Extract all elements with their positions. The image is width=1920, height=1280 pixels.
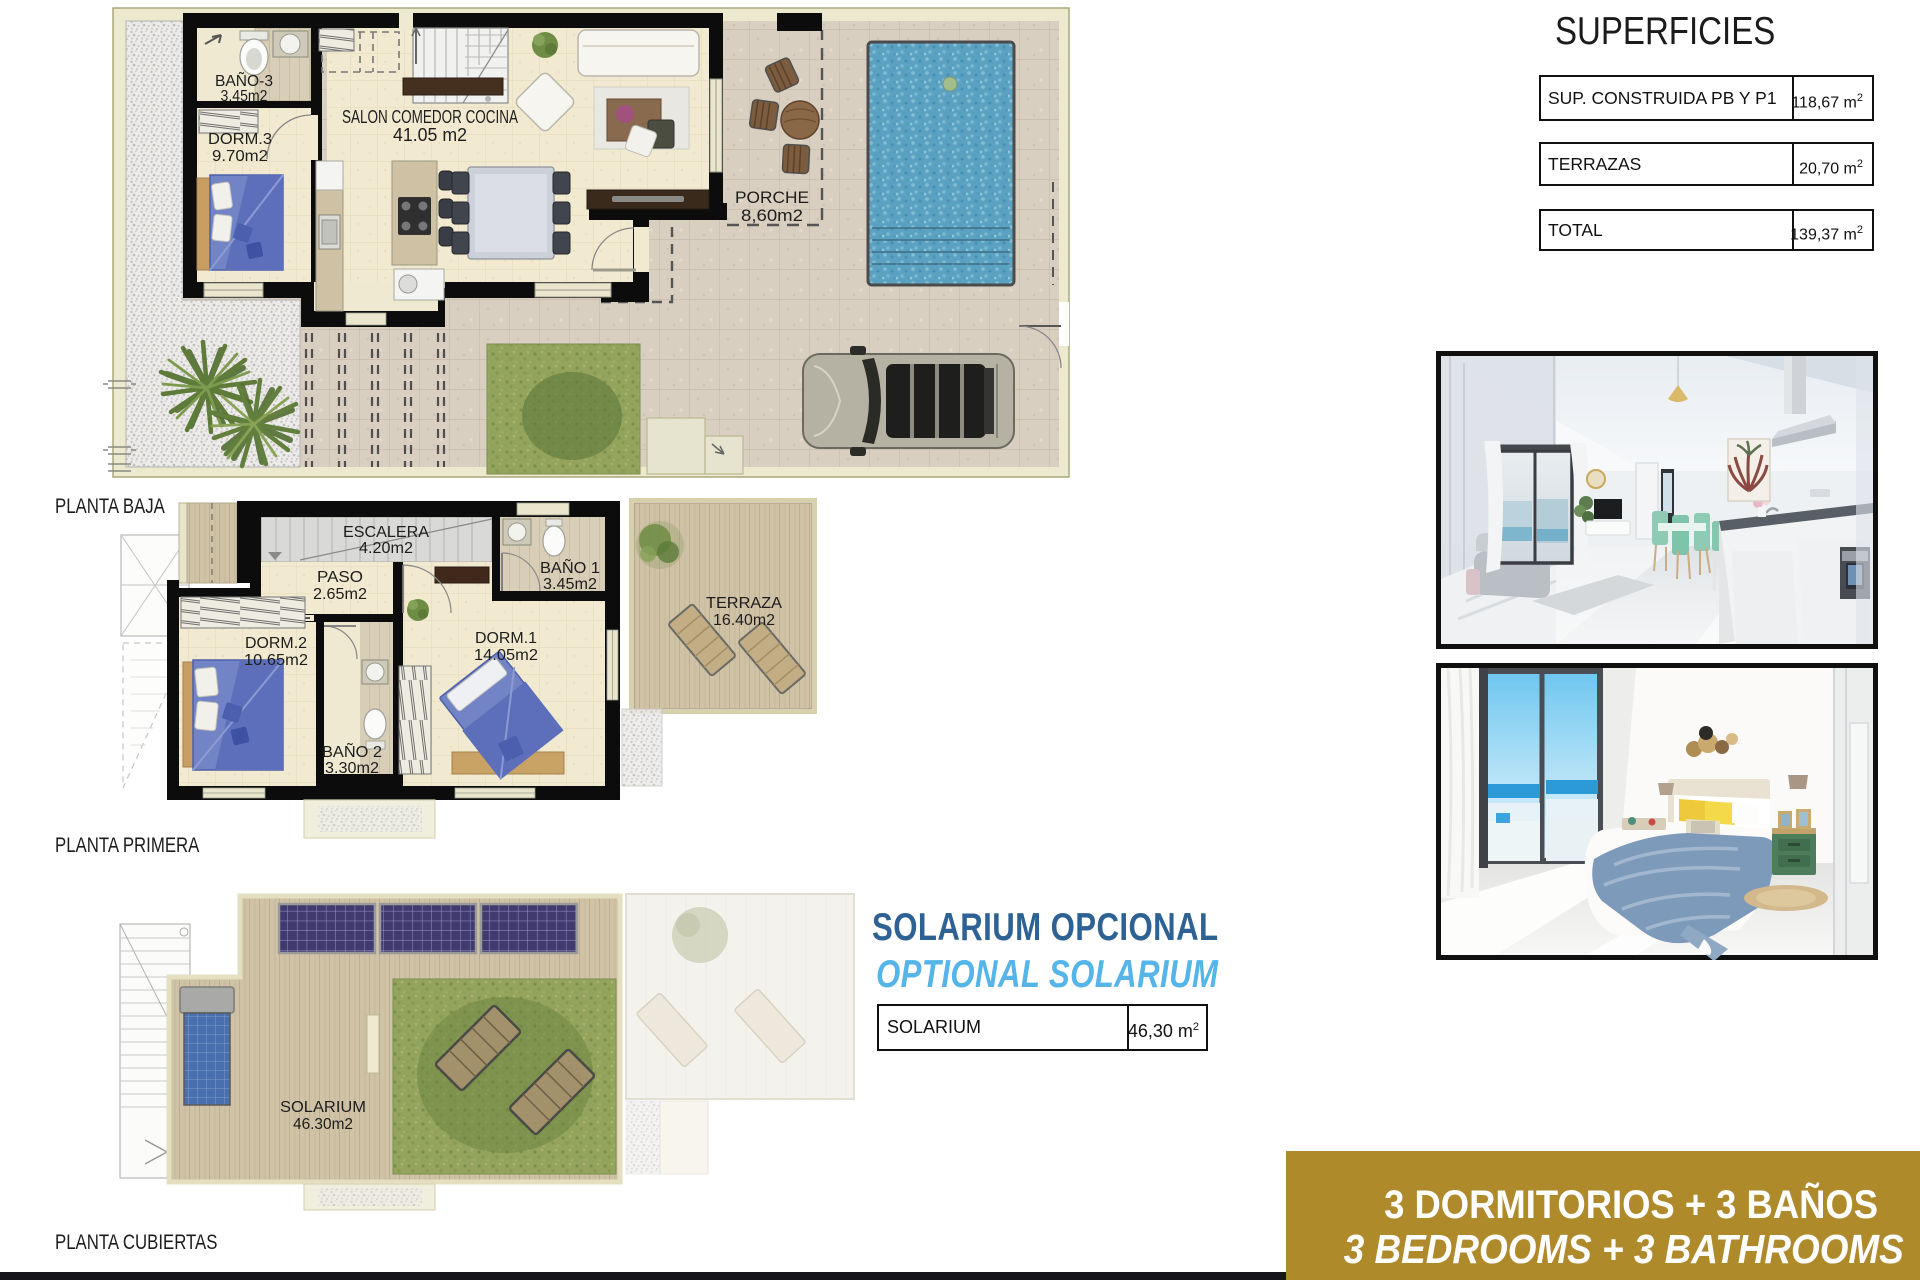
svg-text:SALON COMEDOR COCINA: SALON COMEDOR COCINA — [342, 107, 518, 127]
svg-text:DORM.1: DORM.1 — [475, 630, 537, 647]
svg-text:TERRAZA: TERRAZA — [706, 595, 783, 612]
svg-text:3.45m2: 3.45m2 — [543, 576, 597, 593]
svg-text:14.05m2: 14.05m2 — [474, 647, 538, 664]
svg-text:46.30m2: 46.30m2 — [293, 1116, 353, 1133]
svg-text:4.20m2: 4.20m2 — [359, 540, 413, 557]
svg-text:3.45m2: 3.45m2 — [221, 88, 268, 105]
svg-text:BAÑO 1: BAÑO 1 — [540, 560, 600, 577]
svg-text:BAÑO 2: BAÑO 2 — [322, 744, 382, 761]
svg-text:PASO: PASO — [317, 569, 363, 586]
svg-text:PORCHE: PORCHE — [735, 188, 809, 207]
svg-text:2.65m2: 2.65m2 — [313, 586, 367, 603]
svg-text:41.05 m2: 41.05 m2 — [393, 125, 467, 145]
svg-text:3.30m2: 3.30m2 — [325, 760, 379, 777]
svg-text:8,60m2: 8,60m2 — [741, 206, 803, 225]
svg-text:SOLARIUM: SOLARIUM — [280, 1099, 366, 1116]
svg-text:BAÑO-3: BAÑO-3 — [215, 70, 273, 90]
svg-text:16.40m2: 16.40m2 — [713, 612, 775, 629]
svg-text:9.70m2: 9.70m2 — [212, 148, 268, 165]
svg-text:DORM.3: DORM.3 — [208, 131, 272, 148]
svg-text:ESCALERA: ESCALERA — [343, 524, 430, 541]
svg-text:10.65m2: 10.65m2 — [244, 652, 308, 669]
svg-text:DORM.2: DORM.2 — [245, 635, 307, 652]
